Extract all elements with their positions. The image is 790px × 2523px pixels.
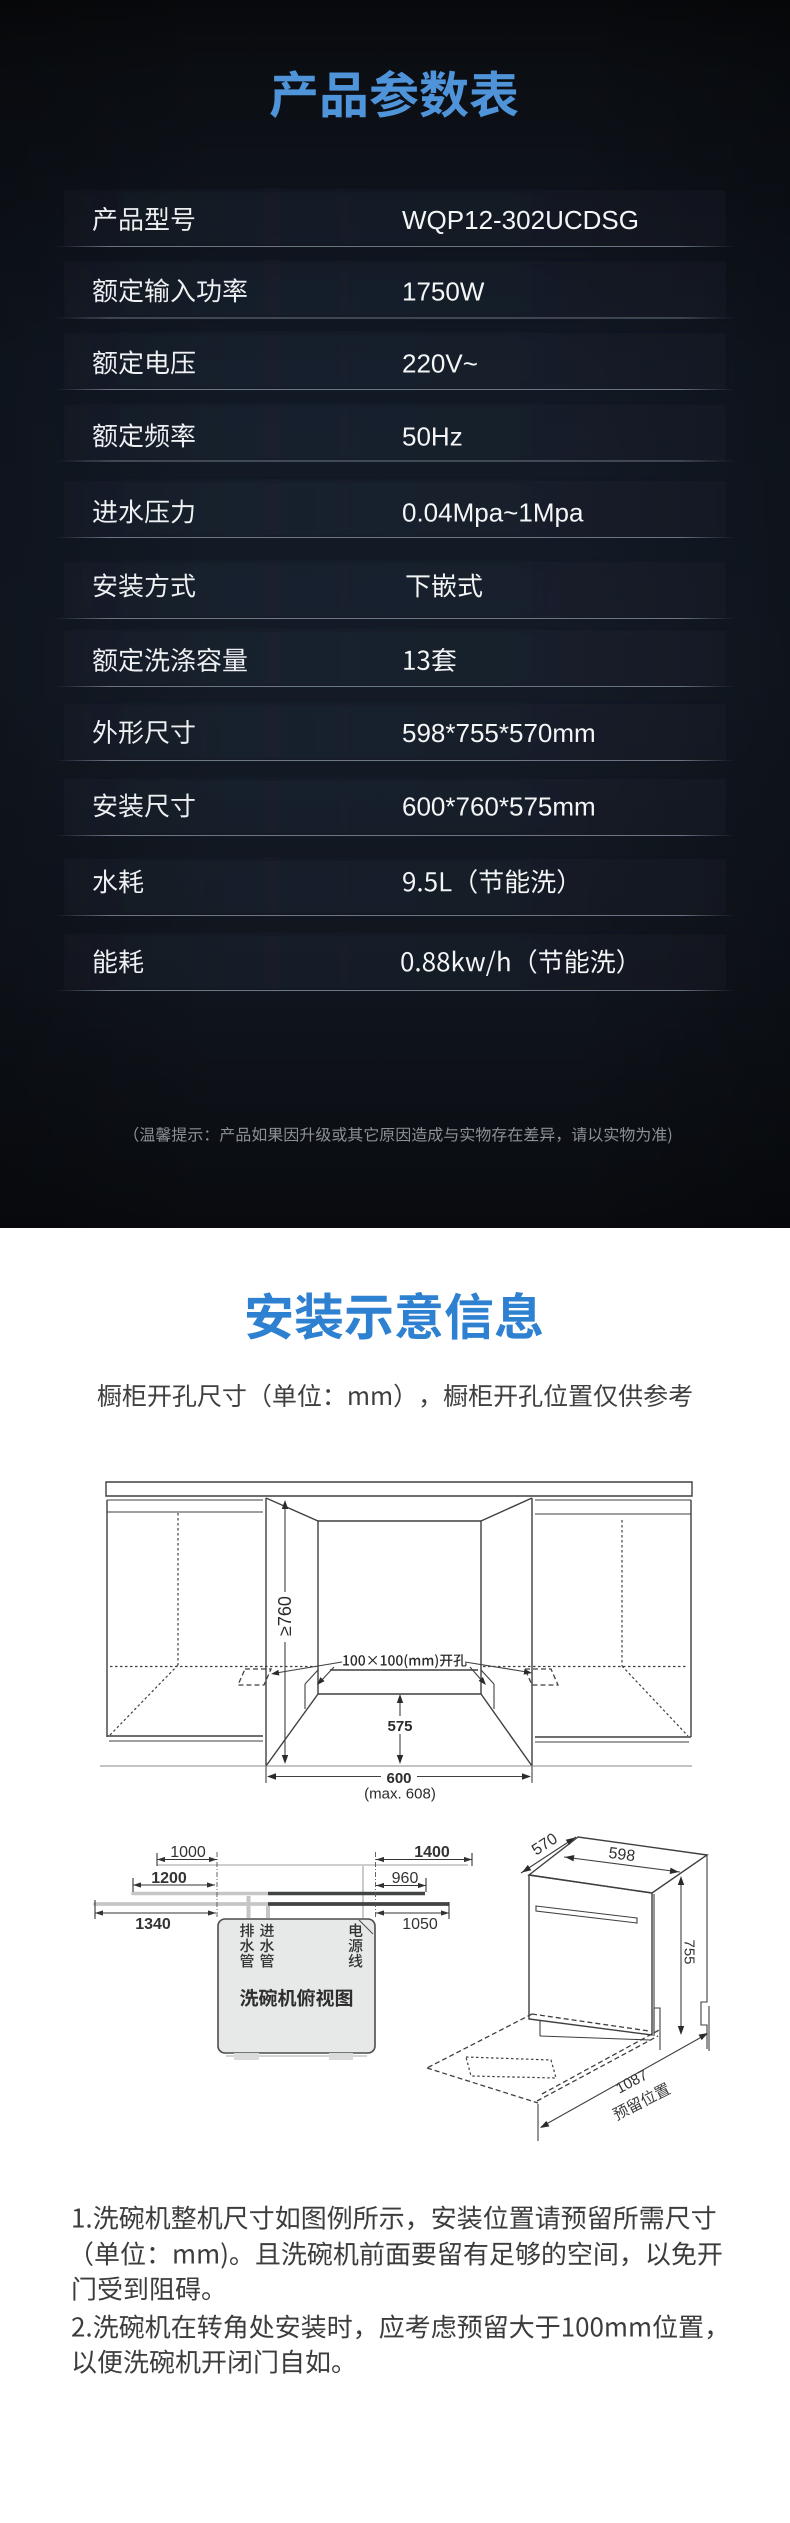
svg-text:0.04Mpa~1Mpa: 0.04Mpa~1Mpa bbox=[402, 497, 584, 527]
svg-text:1340: 1340 bbox=[135, 1916, 171, 1933]
svg-text:≥760: ≥760 bbox=[275, 1596, 295, 1636]
svg-text:1200: 1200 bbox=[151, 1870, 187, 1887]
svg-text:1750W: 1750W bbox=[402, 276, 485, 306]
svg-text:600: 600 bbox=[386, 1770, 411, 1787]
svg-text:600*760*575mm: 600*760*575mm bbox=[402, 791, 596, 821]
svg-text:960: 960 bbox=[392, 1870, 419, 1887]
svg-text:1000: 1000 bbox=[170, 1844, 206, 1861]
svg-text:1050: 1050 bbox=[402, 1916, 438, 1933]
svg-text:1400: 1400 bbox=[414, 1844, 450, 1861]
svg-text:220V~: 220V~ bbox=[402, 348, 478, 378]
svg-text:598: 598 bbox=[607, 1845, 636, 1865]
svg-text:755: 755 bbox=[681, 1939, 698, 1964]
svg-text:WQP12-302UCDSG: WQP12-302UCDSG bbox=[402, 205, 639, 235]
svg-text:(max. 608): (max. 608) bbox=[364, 1786, 436, 1803]
svg-text:598*755*570mm: 598*755*570mm bbox=[402, 718, 596, 748]
svg-text:575: 575 bbox=[387, 1718, 412, 1735]
svg-text:50Hz: 50Hz bbox=[402, 421, 463, 451]
